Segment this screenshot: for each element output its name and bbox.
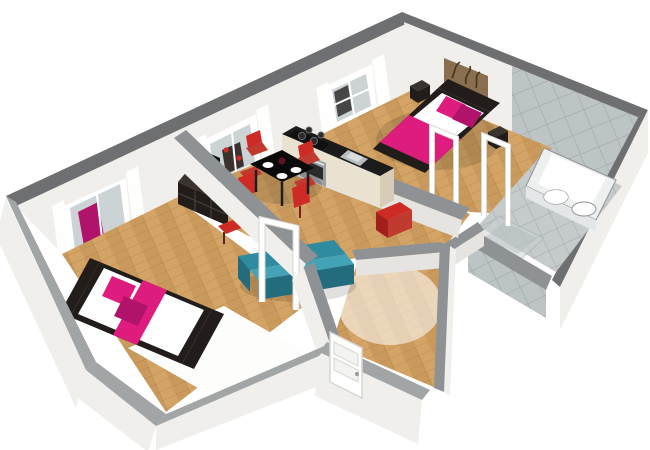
front-door-handle — [355, 372, 359, 376]
basin-1-bowl — [544, 190, 568, 204]
plate-1 — [263, 162, 274, 168]
window-reflection-chair2 — [236, 155, 241, 160]
floorplan-render — [0, 0, 650, 450]
window-reflection-chair1 — [223, 147, 228, 152]
plate-3 — [277, 173, 288, 179]
plate-2 — [291, 167, 302, 173]
table-centerpiece — [279, 158, 286, 165]
floorplan-svg — [0, 0, 650, 450]
